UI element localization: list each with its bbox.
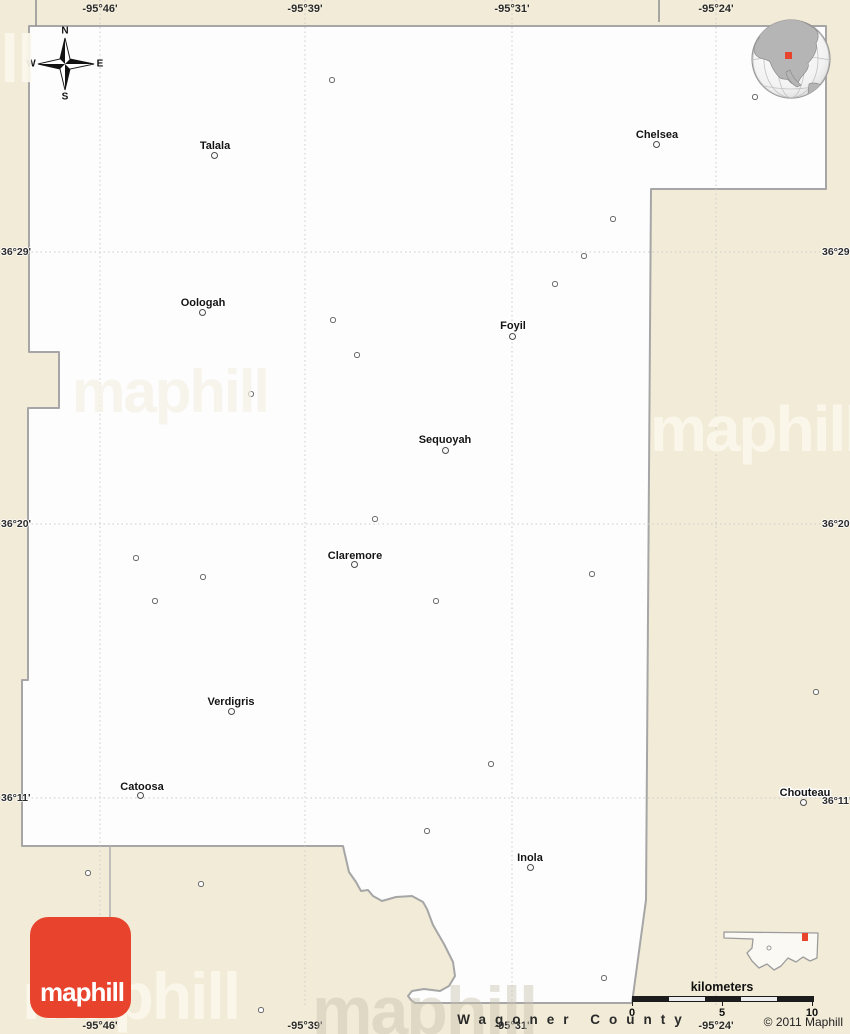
settlement-dot — [198, 881, 204, 887]
city-label: Inola — [517, 852, 543, 864]
latitude-label-left: 36°29' — [1, 246, 28, 258]
longitude-label-top: -95°46' — [82, 3, 117, 15]
city-dot — [509, 333, 516, 340]
city-label: Oologah — [181, 297, 226, 309]
maphill-logo-text: maphill — [40, 977, 124, 1008]
settlement-dot — [601, 975, 607, 981]
city-dot — [137, 792, 144, 799]
settlement-dot — [424, 828, 430, 834]
longitude-label-bottom: -95°24' — [698, 1020, 733, 1032]
settlement-dot — [354, 352, 360, 358]
settlement-dot — [200, 574, 206, 580]
city-label: Claremore — [328, 550, 382, 562]
latitude-label-left: 36°11' — [1, 792, 28, 804]
settlement-dot — [372, 516, 378, 522]
city-dot — [228, 708, 235, 715]
county-map-graphic — [0, 0, 850, 1034]
city-dot — [653, 141, 660, 148]
settlement-dot — [330, 317, 336, 323]
settlement-dot — [552, 281, 558, 287]
city-label: Verdigris — [207, 696, 254, 708]
longitude-label-top: -95°31' — [494, 3, 529, 15]
city-dot — [800, 799, 807, 806]
globe-locator-icon — [752, 19, 830, 100]
scale-bar — [632, 996, 814, 1002]
globe-location-marker — [785, 52, 792, 59]
settlement-dot — [258, 1007, 264, 1013]
neighbor-county-label: Wagoner County — [457, 1012, 691, 1027]
settlement-dot — [133, 555, 139, 561]
settlement-dot — [813, 689, 819, 695]
county-boundary-shape — [22, 26, 826, 1003]
map-canvas: N E S W -95°46'-95°39'-95°31'-95°24'-95°… — [0, 0, 850, 1034]
settlement-dot — [589, 571, 595, 577]
city-label: Catoosa — [120, 781, 163, 793]
settlement-dot — [85, 870, 91, 876]
state-inset-map — [724, 932, 818, 970]
city-dot — [442, 447, 449, 454]
longitude-label-top: -95°24' — [698, 3, 733, 15]
settlement-dot — [248, 391, 254, 397]
longitude-label-bottom: -95°39' — [287, 1020, 322, 1032]
maphill-logo[interactable]: maphill — [30, 917, 131, 1018]
city-dot — [211, 152, 218, 159]
compass-north-label: N — [61, 26, 68, 37]
settlement-dot — [581, 253, 587, 259]
city-label: Chouteau — [780, 787, 831, 799]
scale-tick-label: 5 — [719, 1007, 725, 1019]
settlement-dot — [610, 216, 616, 222]
city-dot — [527, 864, 534, 871]
copyright-text: © 2011 Maphill — [764, 1015, 843, 1029]
settlement-dot — [488, 761, 494, 767]
city-label: Chelsea — [636, 129, 678, 141]
settlement-dot — [433, 598, 439, 604]
latitude-label-left: 36°20' — [1, 518, 28, 530]
settlement-dot — [752, 94, 758, 100]
longitude-label-top: -95°39' — [287, 3, 322, 15]
compass-south-label: S — [62, 92, 69, 103]
inset-county-marker — [802, 933, 808, 941]
compass-west-label: W — [26, 59, 35, 70]
longitude-label-bottom: -95°46' — [82, 1020, 117, 1032]
city-label: Sequoyah — [419, 434, 472, 446]
settlement-dot — [152, 598, 158, 604]
scale-unit-label: kilometers — [691, 980, 754, 994]
latitude-label-right: 36°29' — [822, 246, 850, 258]
city-dot — [199, 309, 206, 316]
city-label: Talala — [200, 140, 230, 152]
compass-east-label: E — [97, 59, 104, 70]
city-label: Foyil — [500, 320, 526, 332]
settlement-dot — [329, 77, 335, 83]
latitude-label-right: 36°20' — [822, 518, 850, 530]
city-dot — [351, 561, 358, 568]
